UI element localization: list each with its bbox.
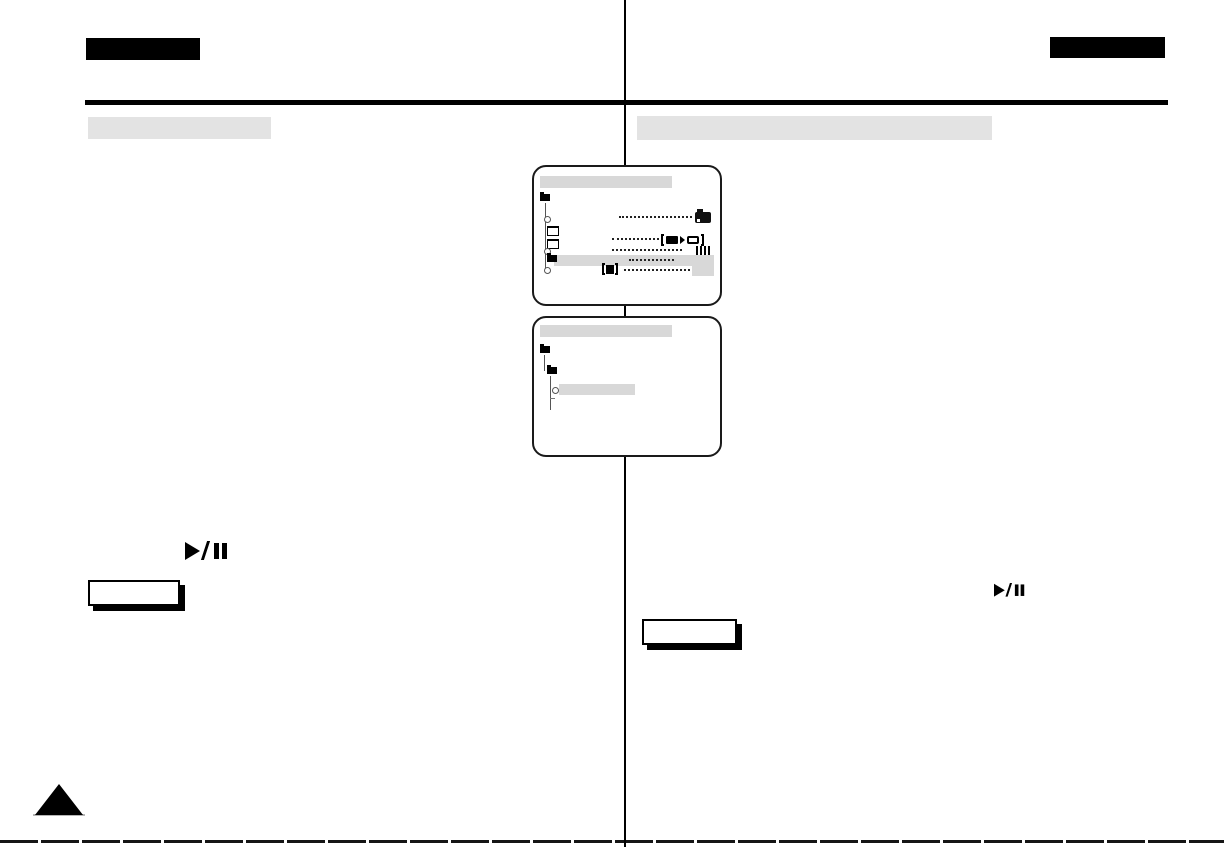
dotted-leader [612,238,659,240]
bottom-scan-artifact [0,840,1224,843]
level-bars-icon [696,246,710,255]
slash-glyph [1005,583,1012,597]
notes-box-right [642,619,737,645]
tree-node-circle-icon [544,216,551,223]
memory-glyph-icon [606,265,614,274]
play-triangle-icon [185,542,200,560]
tree-trunk-line [545,203,546,271]
pause-bar-icon [1021,584,1025,596]
folder-icon [547,226,559,236]
notes-box-left [88,580,180,606]
arrow-right-icon [680,236,685,244]
bracket-left-icon [661,234,664,246]
play-pause-icon [185,541,227,560]
menu-screen-bottom [532,316,722,457]
bracket-m-icon [602,263,618,275]
menu-screen-top [532,165,722,306]
dotted-leader [624,269,690,271]
folder-root-icon [540,194,550,201]
tape-icon [666,236,678,244]
pause-bar-icon [214,543,219,559]
bracket-left-icon [602,263,605,275]
value-box [692,264,714,276]
bracket-right-icon [701,234,704,246]
dotted-leader [629,259,674,261]
dotted-leader [612,249,682,251]
tree-trunk-line [550,376,551,410]
section-title-bar-right [637,116,992,140]
folder-icon [547,255,557,262]
pause-bar-icon [222,543,227,559]
bracket-right-icon [615,263,618,275]
pause-bar-icon [1015,584,1019,596]
header-rule [85,100,1168,105]
dotted-leader [619,216,692,218]
language-tab-left [86,38,200,60]
tape-to-card-icon [661,233,704,246]
tree-node-circle-icon [544,267,551,274]
language-tab-right [1050,37,1165,58]
play-triangle-icon [994,583,1005,596]
highlighted-row [559,384,635,395]
folder-root-icon [540,346,550,353]
tree-node-circle-icon [552,387,559,394]
tree-trunk-line [544,355,545,371]
screen-title-bar [540,325,672,337]
screen-title-bar [540,176,672,188]
camera-icon [695,212,711,223]
folder-icon [547,367,557,374]
card-icon [687,236,699,244]
manual-page [0,0,1224,847]
slash-glyph [201,541,210,560]
tree-stub-line [550,398,555,399]
section-title-bar-left [88,117,271,139]
play-pause-icon [994,583,1024,597]
page-marker-triangle-icon [35,784,83,815]
